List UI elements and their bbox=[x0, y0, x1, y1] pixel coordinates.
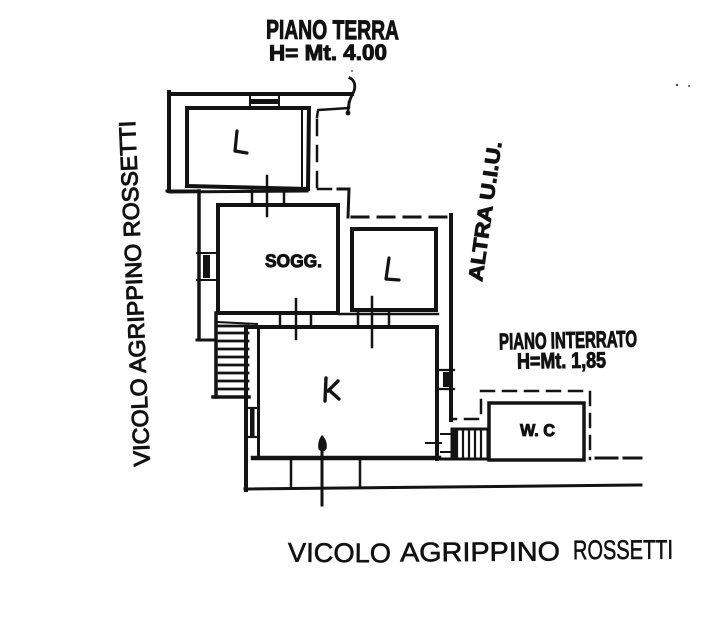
svg-text:W. C: W. C bbox=[520, 421, 555, 440]
svg-text:VICOLO: VICOLO bbox=[288, 538, 391, 569]
svg-text:SOGG.: SOGG. bbox=[265, 251, 322, 271]
svg-text:H= Mt. 4.00: H= Mt. 4.00 bbox=[269, 40, 387, 66]
svg-text:H=Mt. 1,85: H=Mt. 1,85 bbox=[517, 347, 606, 373]
svg-text:VICOLO AGRIPPINO ROSSETTI: VICOLO AGRIPPINO ROSSETTI bbox=[114, 120, 155, 467]
svg-text:ROSSETTI: ROSSETTI bbox=[573, 535, 673, 566]
svg-text:AGRIPPINO: AGRIPPINO bbox=[400, 536, 560, 567]
svg-text:ALTRA U.I.U.: ALTRA U.I.U. bbox=[465, 140, 506, 283]
